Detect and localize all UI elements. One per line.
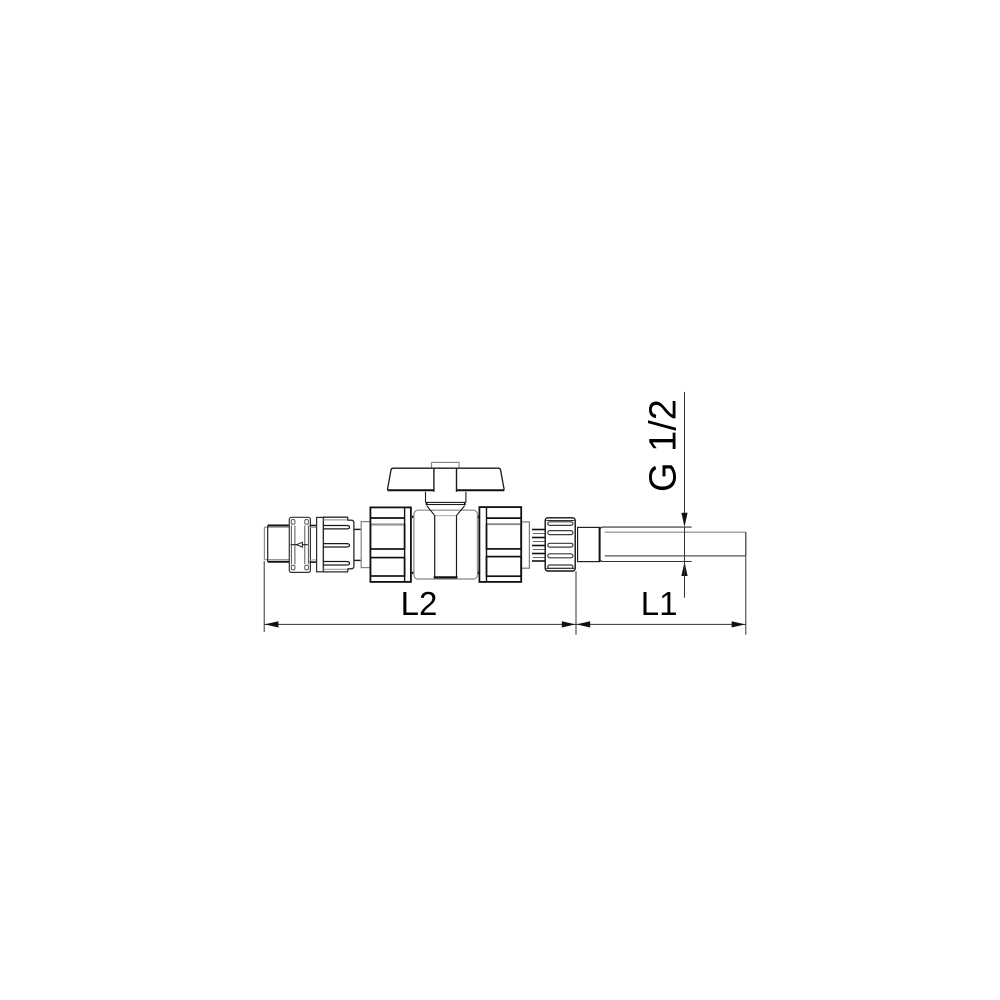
svg-text:G 1/2: G 1/2 bbox=[643, 399, 685, 492]
svg-text:L1: L1 bbox=[641, 585, 678, 622]
svg-text:L2: L2 bbox=[401, 585, 438, 622]
